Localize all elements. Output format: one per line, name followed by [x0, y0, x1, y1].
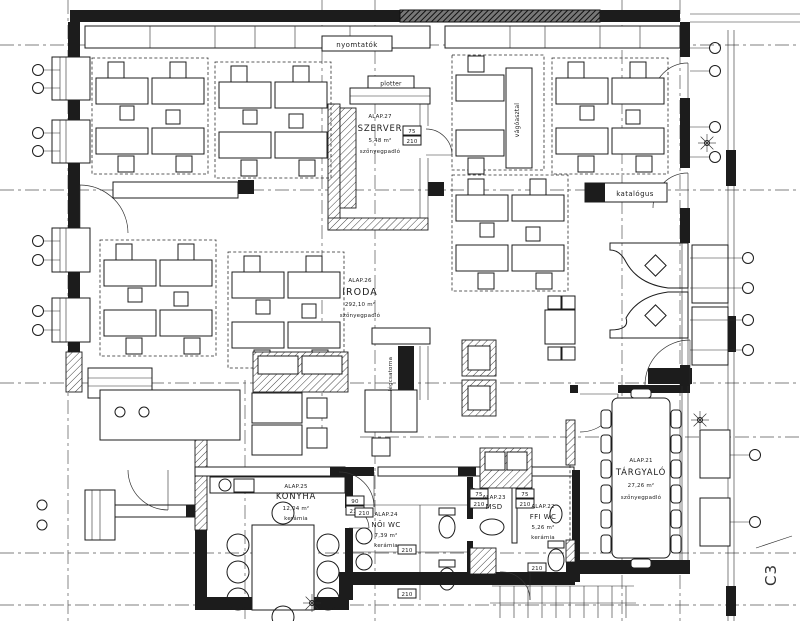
desk — [232, 272, 284, 298]
targyalo-area: 27,26 m² — [628, 482, 655, 489]
armchair-seat — [468, 386, 490, 410]
wall-junction — [648, 368, 692, 384]
door-marker — [710, 152, 721, 163]
chair — [307, 398, 327, 418]
konyha-area: 12,04 m² — [283, 505, 310, 512]
chair — [128, 288, 142, 302]
exterior-wall-left — [68, 163, 80, 228]
desk — [456, 75, 504, 101]
plant-leaf — [701, 143, 707, 149]
corridor-outer-pier — [726, 586, 736, 616]
dimension-text: 210 — [531, 566, 542, 572]
desk — [512, 245, 564, 271]
desk-cluster — [92, 58, 208, 174]
chair — [243, 110, 257, 124]
window-marker — [33, 146, 44, 157]
chair — [174, 292, 188, 306]
targyalo-id: ALAP.21 — [629, 458, 652, 464]
window-marker — [37, 520, 47, 530]
chair — [626, 110, 640, 124]
plant — [303, 594, 321, 612]
dimension-text: 210 — [406, 139, 417, 145]
chair — [289, 114, 303, 128]
iroda-name: IRODA — [342, 287, 378, 298]
desk-cluster — [552, 58, 668, 174]
stove — [234, 479, 254, 492]
window-marker — [743, 283, 754, 294]
small-table — [545, 310, 575, 344]
exterior-wall-top — [70, 10, 400, 22]
desk-cluster — [452, 175, 568, 291]
desk — [104, 260, 156, 286]
meeting-chair — [631, 389, 651, 398]
window-bay — [52, 57, 90, 100]
room-label-mosdo: ALAP.23 MSD — [482, 495, 506, 511]
desk — [104, 310, 156, 336]
cutting-table-label: vágóasztal — [514, 103, 521, 137]
chair — [562, 347, 575, 360]
window-marker — [33, 65, 44, 76]
desk — [232, 322, 284, 348]
exterior-wall-bottom — [566, 560, 690, 574]
desk — [365, 390, 391, 432]
window-marker — [750, 517, 761, 528]
desk — [556, 78, 608, 104]
sofa-cushion — [507, 452, 527, 470]
chair — [568, 62, 584, 78]
mosdo-id: ALAP.23 — [482, 495, 506, 501]
targyalo-floor: szőnyegpadló — [621, 494, 662, 501]
chair — [562, 296, 575, 309]
window-bay — [692, 307, 728, 365]
iroda-id: ALAP.26 — [348, 278, 372, 284]
chair — [536, 273, 552, 289]
window-marker — [743, 253, 754, 264]
table — [100, 390, 240, 440]
desk — [456, 245, 508, 271]
catalog-label: katalógus — [616, 190, 654, 198]
desk — [219, 82, 271, 108]
plant-leaf — [694, 420, 700, 426]
wall-left-block — [195, 530, 207, 607]
toilet-tank — [439, 560, 455, 567]
desk — [96, 128, 148, 154]
meeting-top-wall — [570, 385, 578, 393]
iroda-area: 292,10 m² — [345, 301, 375, 308]
window-bay — [700, 430, 730, 478]
door-swing-arc — [128, 470, 168, 510]
label-catalog: katalógus — [585, 183, 667, 202]
desk — [556, 128, 608, 154]
window-marker — [33, 325, 44, 336]
chair — [468, 179, 484, 195]
server-left-wall — [328, 104, 340, 230]
corridor-inner-wall — [680, 208, 690, 243]
ffi-wc-id: ALAP.22 — [531, 504, 554, 510]
sofa-cushion — [258, 356, 298, 374]
desk — [456, 130, 504, 156]
desk-cluster — [100, 240, 216, 356]
szerver-area: 5,48 m² — [369, 137, 392, 144]
window-marker — [33, 83, 44, 94]
meeting-left-wall — [566, 540, 575, 562]
desk-cluster — [215, 62, 331, 178]
chair — [178, 244, 194, 260]
kitchen-top-wall — [195, 467, 345, 476]
kitchen-counter — [210, 477, 345, 493]
sofa-cushion — [302, 356, 342, 374]
desk — [252, 393, 302, 423]
window-marker — [37, 500, 47, 510]
window-marker — [750, 450, 761, 461]
plant — [698, 134, 716, 152]
window-marker — [743, 345, 754, 356]
dimension-text: 210 — [519, 502, 530, 508]
label-printers: nyomtatók — [322, 36, 392, 51]
plant-leaf — [707, 143, 713, 149]
exterior-wall-left — [68, 22, 80, 57]
chair — [530, 179, 546, 195]
chair — [526, 227, 540, 241]
dimension-text: 210 — [358, 511, 369, 517]
chair — [636, 156, 652, 172]
chair — [580, 106, 594, 120]
meeting-top-wall — [618, 385, 690, 393]
chair — [480, 223, 494, 237]
label-plotter: plotter — [368, 76, 414, 88]
chair — [372, 438, 390, 456]
meeting-chair — [631, 559, 651, 568]
chair — [256, 300, 270, 314]
chair — [116, 244, 132, 260]
window-bay — [692, 245, 728, 303]
chair — [244, 256, 260, 272]
chair — [184, 338, 200, 354]
toilet-tank — [439, 508, 455, 515]
server-bottom-wall — [328, 218, 428, 230]
meeting-table — [612, 398, 670, 558]
pilaster — [238, 180, 254, 194]
wall-left-block — [195, 425, 207, 530]
ffi-wc-floor: kerámia — [531, 534, 555, 541]
printers-label: nyomtatók — [336, 41, 378, 49]
sofa-cushion — [485, 452, 505, 470]
chair — [548, 296, 561, 309]
door-marker — [710, 43, 721, 54]
szerver-name: SZERVER — [358, 124, 403, 134]
dimension-text: 90 — [351, 499, 359, 505]
targyalo-name: TÁRGYALÓ — [615, 466, 666, 478]
chair — [126, 338, 142, 354]
wall-cabinet-row — [445, 26, 680, 48]
desk — [160, 310, 212, 336]
corridor-outer-pier — [726, 150, 736, 186]
desk — [612, 78, 664, 104]
exterior-wall-left — [68, 272, 80, 298]
sink — [356, 528, 372, 544]
szerver-id: ALAP.27 — [368, 114, 392, 120]
mosdo-name: MSD — [485, 503, 502, 511]
exterior-wall-top — [600, 10, 680, 22]
window-bay — [700, 498, 730, 546]
builtin-furniture-label: bútorbeépítés — [346, 539, 353, 580]
desk — [275, 82, 327, 108]
noi-wc-name: NŐI WC — [371, 520, 400, 529]
washbasin — [480, 519, 504, 535]
section-marker-c3: C3 — [756, 536, 792, 586]
dimension-text: 75 — [521, 492, 529, 498]
armchair-seat — [468, 346, 490, 370]
dimension-text: 210 — [401, 592, 412, 598]
chair — [307, 428, 327, 448]
desk — [288, 272, 340, 298]
chair — [468, 56, 484, 72]
chair — [166, 110, 180, 124]
plant — [691, 411, 709, 429]
sink — [356, 554, 372, 570]
chair — [231, 66, 247, 82]
meeting-chair — [601, 485, 611, 503]
chair — [548, 347, 561, 360]
desk — [152, 128, 204, 154]
chair — [118, 156, 134, 172]
window-marker — [33, 255, 44, 266]
server-rack — [340, 108, 356, 208]
dimension-text: 210 — [401, 548, 412, 554]
desk — [152, 78, 204, 104]
konyha-id: ALAP.25 — [284, 484, 308, 490]
dimension-text: 210 — [473, 502, 484, 508]
room-label-ffi-wc: ALAP.22 FFI WC 5,26 m² kerámia — [530, 504, 557, 541]
meeting-chair — [601, 410, 611, 428]
desk-cluster — [228, 252, 344, 368]
window-marker — [33, 128, 44, 139]
room-label-szerver: ALAP.27 SZERVER 5,48 m² szőnyegpadló — [358, 114, 403, 155]
executive-chair — [645, 305, 666, 326]
plant-leaf — [701, 137, 707, 143]
desk — [160, 260, 212, 286]
chair — [176, 156, 192, 172]
chair — [241, 160, 257, 176]
iroda-floor: szőnyegpadló — [340, 312, 381, 319]
door-marker — [710, 122, 721, 133]
konyha-floor: kerámia — [284, 515, 308, 522]
konyha-name: KONYHA — [276, 492, 316, 502]
meeting-chair — [671, 460, 681, 478]
meeting-chair — [671, 410, 681, 428]
chair — [170, 62, 186, 78]
plant-leaf — [700, 414, 706, 420]
pilaster — [428, 182, 444, 196]
plant-leaf — [694, 414, 700, 420]
meeting-chair — [671, 535, 681, 553]
meeting-chair — [601, 535, 611, 553]
corridor-inner-wall — [680, 98, 690, 168]
exterior-wall-bottom — [345, 572, 575, 585]
wc-top-wall — [458, 467, 476, 476]
chair — [120, 106, 134, 120]
szerver-floor: szőnyegpadló — [360, 148, 401, 155]
toilet-tank — [548, 541, 564, 548]
desk — [612, 128, 664, 154]
chair — [630, 62, 646, 78]
ffi-wc-area: 5,26 m² — [532, 524, 555, 531]
noi-wc-floor: kerámia — [374, 542, 398, 549]
toilet — [439, 516, 455, 538]
chair — [478, 273, 494, 289]
window-marker — [743, 315, 754, 326]
door-swing-arc — [426, 129, 452, 155]
kitchen-table — [252, 525, 314, 610]
window-marker — [33, 236, 44, 247]
desk — [456, 195, 508, 221]
duct-label: légcsatorna — [387, 357, 394, 391]
window-bay — [52, 228, 90, 272]
exterior-wall-top-hatched — [400, 10, 600, 22]
plant-leaf — [707, 137, 713, 143]
round-chair — [317, 561, 339, 583]
desk — [219, 132, 271, 158]
desk — [275, 132, 327, 158]
door-marker — [710, 66, 721, 77]
meeting-chair — [671, 435, 681, 453]
desk — [391, 390, 417, 432]
window-bay — [52, 298, 90, 342]
meeting-chair — [601, 435, 611, 453]
corridor-inner-wall — [680, 560, 690, 574]
desk — [288, 322, 340, 348]
shaft-top — [372, 328, 430, 344]
desk — [96, 78, 148, 104]
room-label-noi-wc: ALAP.24 NŐI WC 7,39 m² kerámia — [371, 512, 400, 549]
meeting-chair — [601, 460, 611, 478]
dimension-text: 75 — [408, 129, 416, 135]
exterior-wall-left-hatched — [66, 352, 82, 392]
chair — [578, 156, 594, 172]
chair — [468, 158, 484, 174]
chair — [108, 62, 124, 78]
window-marker — [33, 306, 44, 317]
executive-chair — [645, 255, 666, 276]
sideboard — [113, 182, 238, 198]
noi-wc-id: ALAP.24 — [374, 512, 398, 518]
meeting-chair — [671, 485, 681, 503]
floor-plan-canvas: 75210902107521075210210210210210 nyomtat… — [0, 0, 800, 621]
desk — [512, 195, 564, 221]
window-bay — [52, 120, 90, 163]
plant-leaf — [700, 420, 706, 426]
exterior-wall-left — [68, 100, 80, 120]
meeting-chair — [601, 510, 611, 528]
c3-label: C3 — [762, 564, 780, 586]
meeting-left-wall — [566, 420, 575, 465]
room-label-iroda: ALAP.26 IRODA 292,10 m² szőnyegpadló — [340, 278, 381, 319]
chair — [293, 66, 309, 82]
meeting-chair — [671, 510, 681, 528]
floor-plan-svg: 75210902107521075210210210210210 nyomtat… — [0, 0, 800, 621]
plotter-label: plotter — [380, 81, 402, 88]
wall — [115, 505, 195, 517]
corridor-inner-wall — [680, 22, 690, 57]
noi-wc-area: 7,39 m² — [375, 532, 398, 539]
chair — [299, 160, 315, 176]
chair — [302, 304, 316, 318]
shower — [470, 548, 496, 574]
chair — [306, 256, 322, 272]
ffi-wc-name: FFI WC — [530, 513, 557, 521]
desk — [252, 425, 302, 455]
toilet — [548, 549, 564, 571]
round-chair — [227, 561, 249, 583]
